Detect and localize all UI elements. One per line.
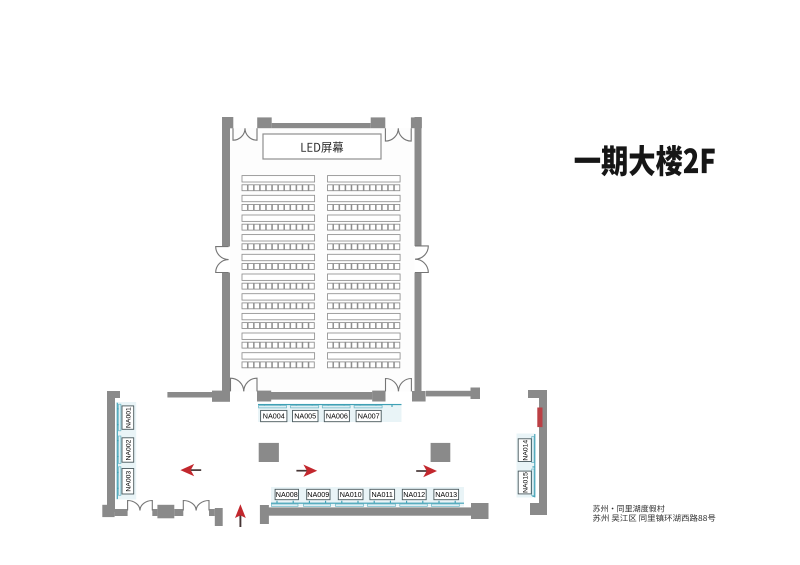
svg-text:NA011: NA011 [371,490,392,499]
svg-text:NA008: NA008 [276,490,298,499]
svg-text:NA004: NA004 [263,412,285,421]
svg-text:NA013: NA013 [435,490,457,499]
svg-text:NA001: NA001 [126,407,133,428]
svg-text:NA006: NA006 [326,412,348,421]
svg-text:NA015: NA015 [523,472,530,493]
svg-text:NA012: NA012 [403,490,425,499]
svg-text:NA009: NA009 [307,490,329,499]
svg-text:NA014: NA014 [523,440,530,461]
svg-text:NA005: NA005 [294,412,316,421]
svg-text:NA002: NA002 [126,439,133,460]
svg-text:NA007: NA007 [358,412,380,421]
svg-text:NA010: NA010 [340,490,362,499]
svg-text:NA003: NA003 [126,471,133,492]
